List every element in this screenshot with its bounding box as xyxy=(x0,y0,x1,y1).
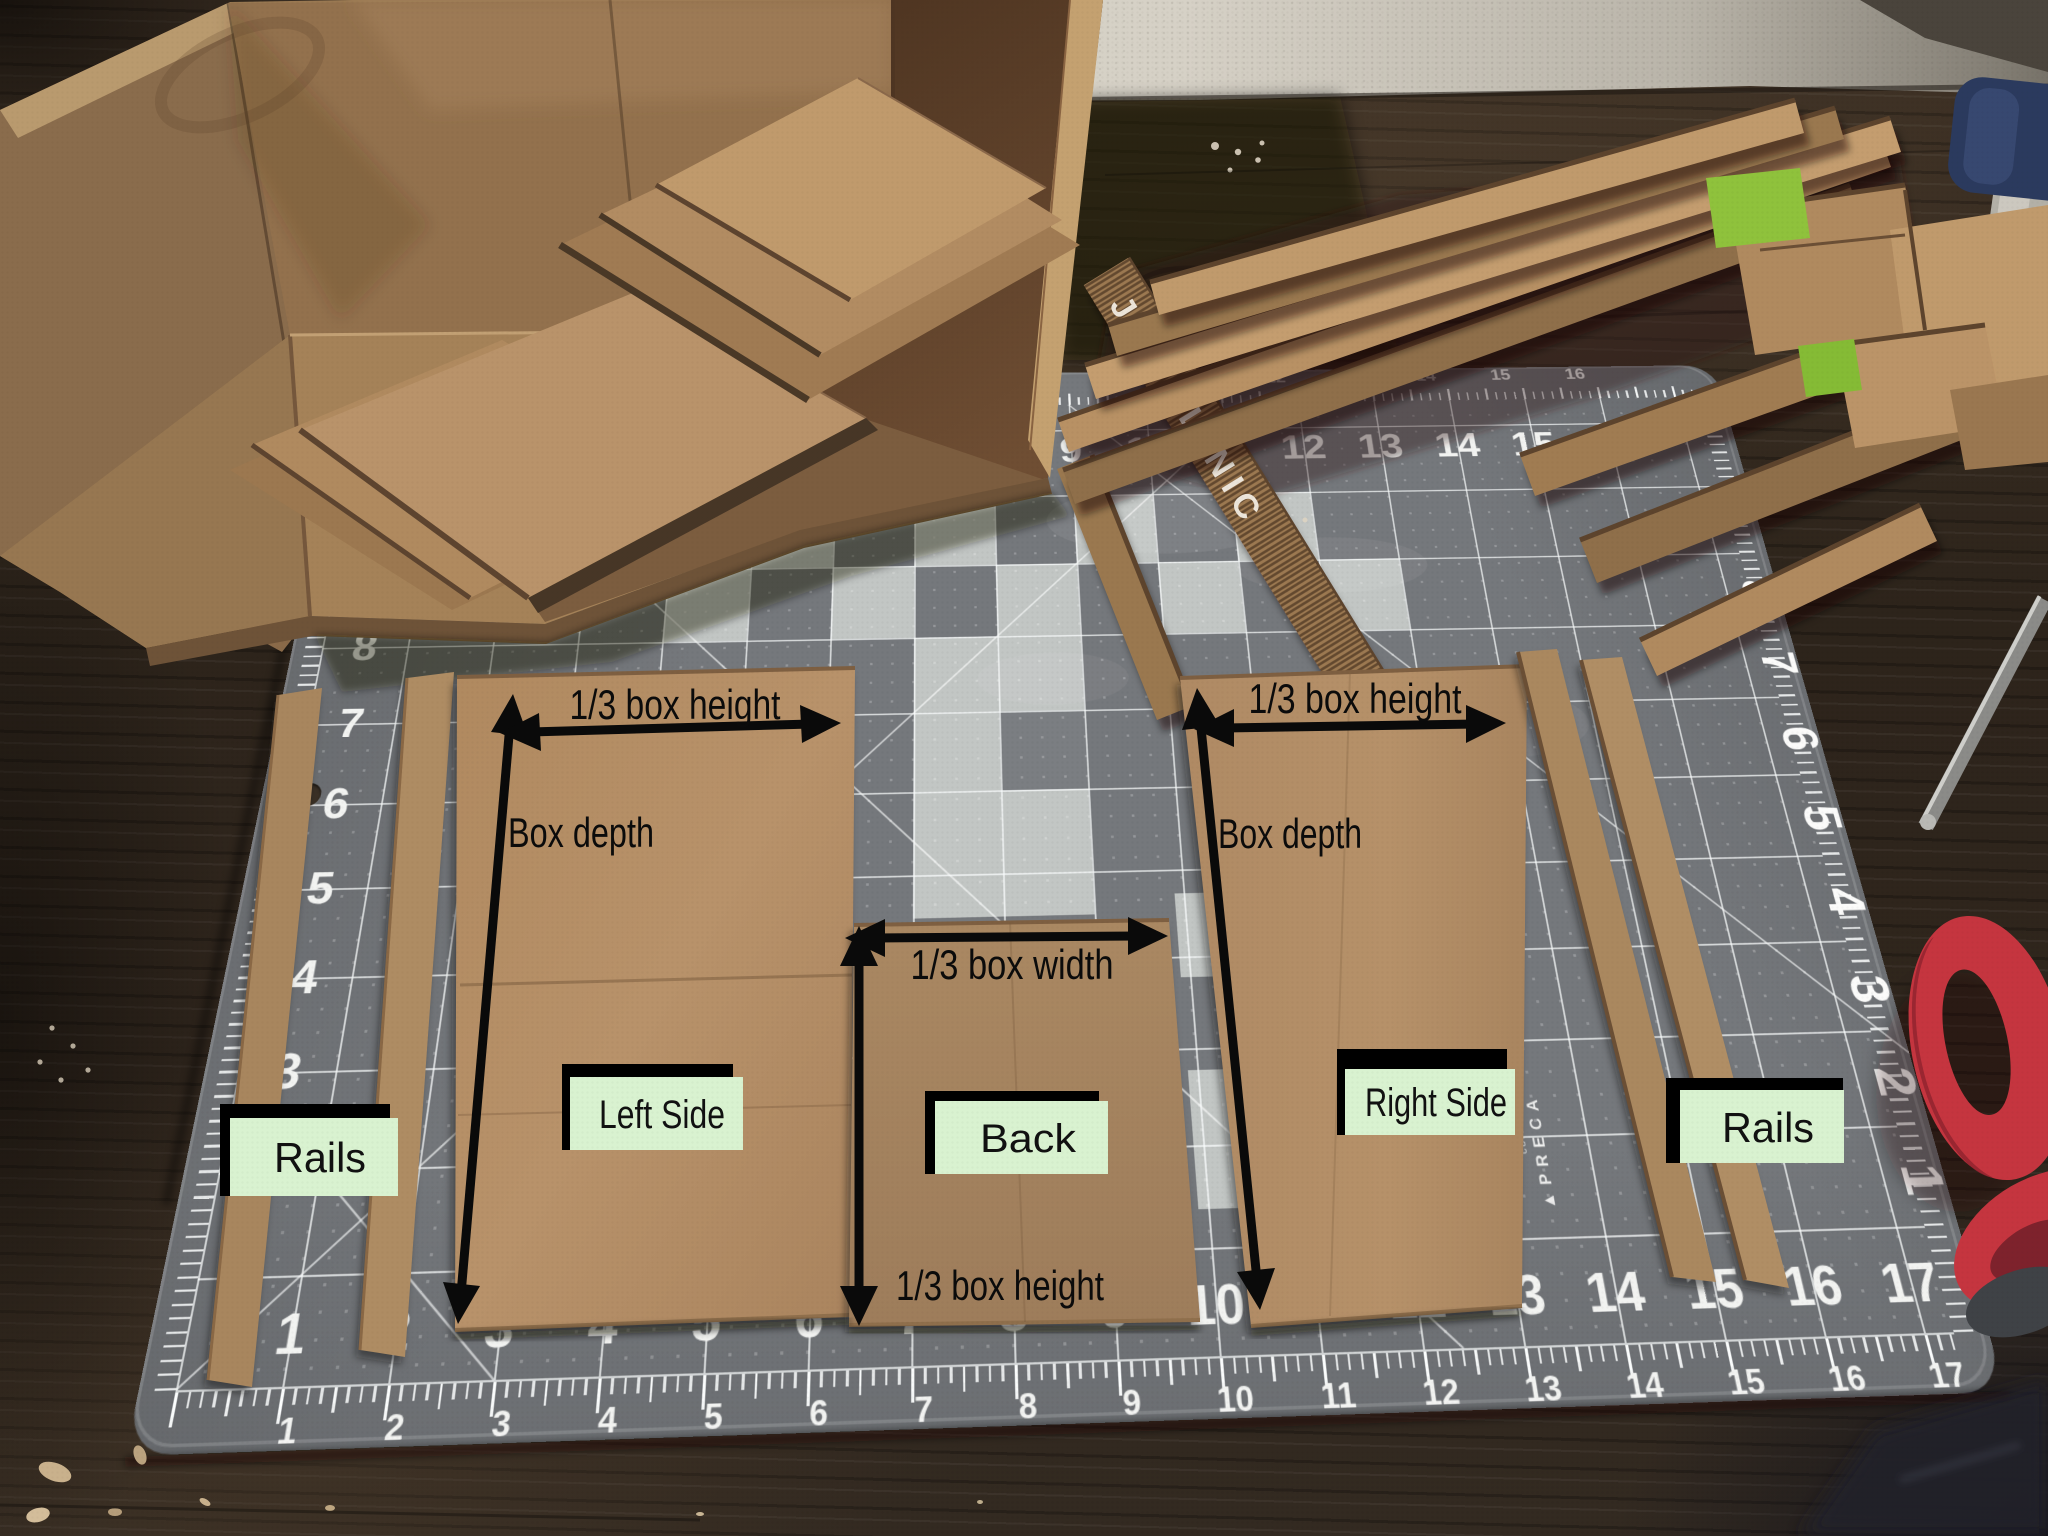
svg-text:Right Side: Right Side xyxy=(1365,1081,1507,1125)
svg-text:1/3 box width: 1/3 box width xyxy=(911,941,1114,988)
svg-text:Box depth: Box depth xyxy=(1218,810,1362,857)
svg-text:Back: Back xyxy=(980,1117,1077,1161)
svg-text:Left Side: Left Side xyxy=(599,1093,725,1137)
svg-text:1/3 box height: 1/3 box height xyxy=(896,1262,1104,1309)
svg-text:1/3 box height: 1/3 box height xyxy=(1249,675,1462,722)
svg-text:Box depth: Box depth xyxy=(508,809,654,856)
svg-text:Rails: Rails xyxy=(1722,1104,1814,1151)
svg-text:Rails: Rails xyxy=(274,1134,366,1181)
svg-text:1/3 box height: 1/3 box height xyxy=(570,681,781,728)
